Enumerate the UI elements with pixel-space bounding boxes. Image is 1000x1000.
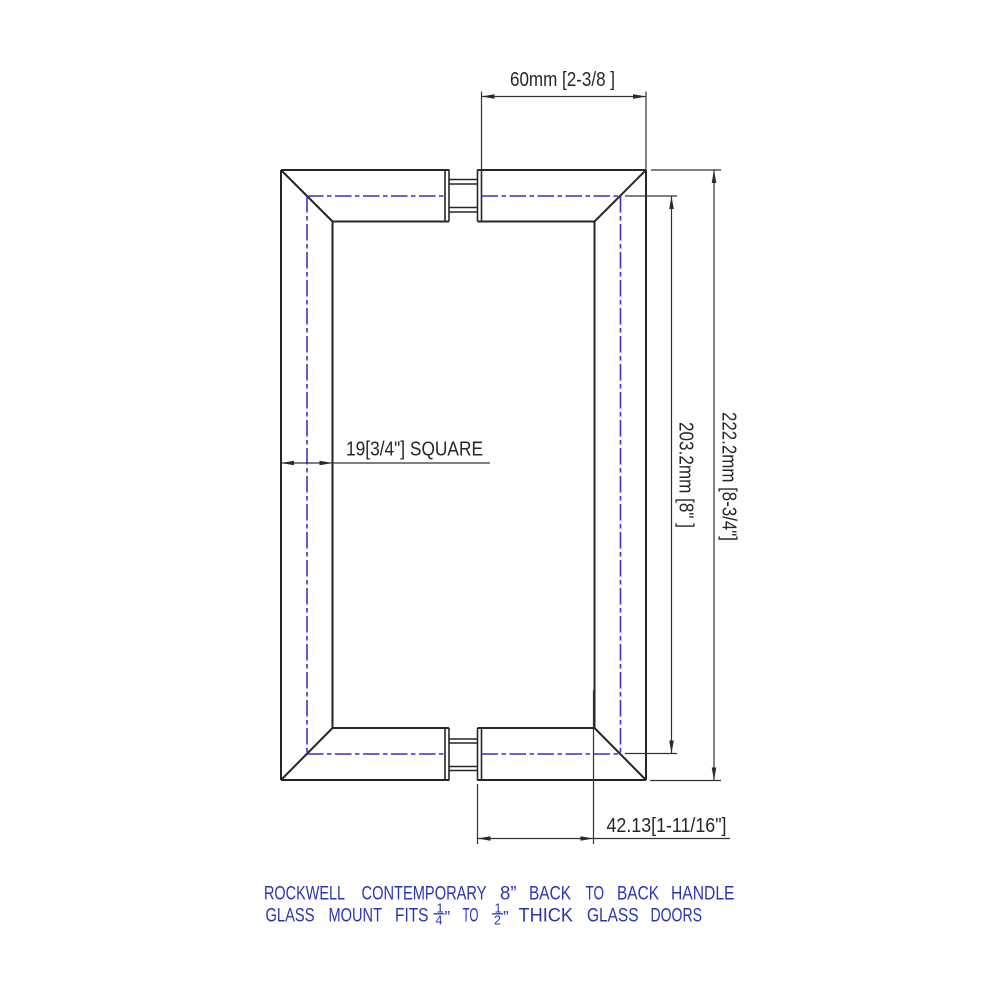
svg-text:BACK: BACK xyxy=(529,884,571,905)
svg-text:19[3/4"] SQUARE: 19[3/4"] SQUARE xyxy=(346,439,483,461)
svg-text:203.2mm [8" ]: 203.2mm [8" ] xyxy=(675,422,697,528)
svg-text:8”: 8” xyxy=(500,884,517,905)
svg-text:BACK: BACK xyxy=(617,884,659,905)
svg-text:60mm [2-3/8 ]: 60mm [2-3/8 ] xyxy=(510,69,615,91)
svg-text:CONTEMPORARY: CONTEMPORARY xyxy=(362,884,487,905)
svg-text:”: ” xyxy=(445,908,451,927)
svg-text:TO: TO xyxy=(586,884,605,905)
svg-text:THICK: THICK xyxy=(519,906,574,927)
svg-text:GLASS: GLASS xyxy=(266,906,315,927)
svg-text:TO: TO xyxy=(463,906,479,927)
svg-text:GLASS: GLASS xyxy=(587,906,639,927)
svg-text:222.2mm [8-3/4"]: 222.2mm [8-3/4"] xyxy=(718,412,740,541)
svg-text:42.13[1-11/16"]: 42.13[1-11/16"] xyxy=(607,815,727,837)
svg-text:HANDLE: HANDLE xyxy=(671,884,735,905)
svg-text:”: ” xyxy=(503,908,509,927)
svg-text:FITS: FITS xyxy=(395,906,429,927)
svg-text:4: 4 xyxy=(436,914,443,928)
svg-text:DOORS: DOORS xyxy=(651,906,703,927)
svg-text:ROCKWELL: ROCKWELL xyxy=(264,884,345,905)
svg-text:MOUNT: MOUNT xyxy=(329,906,383,927)
svg-text:2: 2 xyxy=(494,914,501,928)
